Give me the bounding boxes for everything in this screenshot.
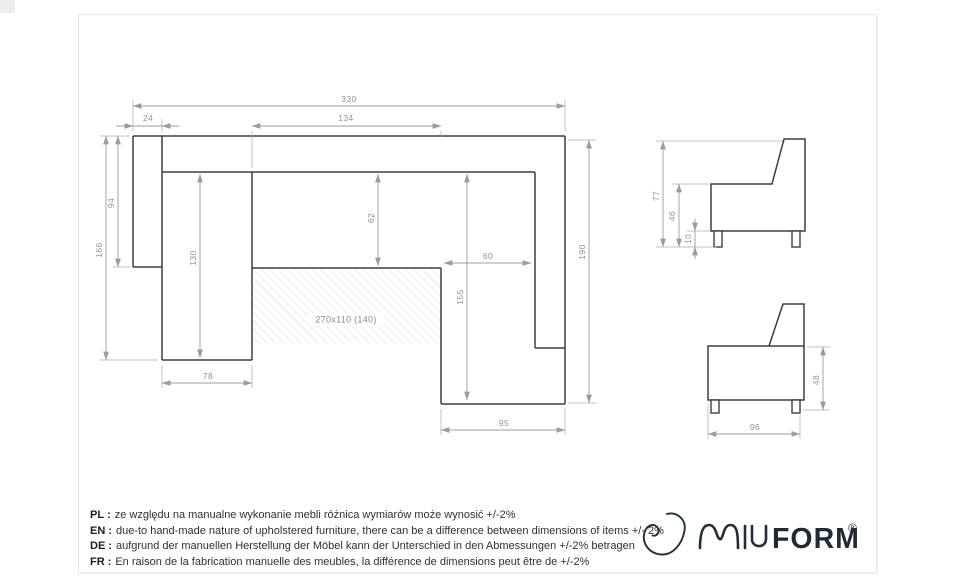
dim-seat-depth-label: 62 xyxy=(366,213,376,223)
dim-left-chaise-width: 78 xyxy=(162,365,252,388)
disclaimer-separator: : xyxy=(108,540,112,552)
side-corner-leg-left xyxy=(714,231,722,247)
logo-form-text: FORM xyxy=(772,523,860,555)
disclaimer-separator: : xyxy=(108,525,112,537)
disclaimer-line-pl: PL:ze względu na manualne wykonanie mebl… xyxy=(90,508,665,524)
dim-left-chaise-length: 130 xyxy=(188,174,200,358)
disclaimer-line-en: EN:due-to hand-made nature of upholstere… xyxy=(90,524,665,540)
disclaimer-block: PL:ze względu na manualne wykonanie mebl… xyxy=(90,508,665,570)
dim-right-chaise-width-label: 95 xyxy=(499,418,509,428)
dim-body-height: 48 xyxy=(803,347,830,410)
dim-total-height-label: 77 xyxy=(651,191,661,201)
dim-body-height-label: 48 xyxy=(811,375,821,385)
side-front-body xyxy=(708,346,804,400)
technical-drawing-page: 270x110 (140) xyxy=(0,0,960,587)
sofa-plan-view: 270x110 (140) xyxy=(94,94,596,435)
dim-left-armrest-depth-label: 94 xyxy=(106,198,116,208)
disclaimer-lang-en: EN xyxy=(90,525,105,537)
dim-center-section-width-label: 134 xyxy=(338,113,353,123)
dim-center-section-width: 134 xyxy=(252,113,441,168)
dim-leg-height: 10 xyxy=(683,219,710,259)
dim-leg-height-label: 10 xyxy=(683,234,693,244)
sleeping-area-hatch xyxy=(253,269,440,344)
dim-left-side-depth-label: 166 xyxy=(94,242,104,257)
side-front-backrest xyxy=(769,304,804,346)
side-front-leg-left xyxy=(711,400,719,413)
sofa-side-view-front: 48 96 xyxy=(708,304,830,439)
logo-registered-mark: ® xyxy=(848,521,857,535)
dim-depth: 96 xyxy=(708,404,800,439)
miuform-logo: FORM ® xyxy=(644,514,860,555)
disclaimer-text-en: due-to hand-made nature of upholstered f… xyxy=(116,525,664,537)
dim-right-chaise-width: 95 xyxy=(441,409,565,435)
disclaimer-lang-fr: FR xyxy=(90,556,105,568)
dim-left-chaise-length-label: 130 xyxy=(188,250,198,265)
disclaimer-line-de: DE:aufgrund der manuellen Herstellung de… xyxy=(90,539,665,555)
side-corner-outline xyxy=(711,139,805,231)
dim-depth-label: 96 xyxy=(750,422,760,432)
dim-right-chaise-length-label: 155 xyxy=(455,289,465,304)
technical-drawing-svg: 270x110 (140) xyxy=(0,0,960,587)
disclaimer-lang-de: DE xyxy=(90,540,105,552)
logo-miu-glyphs xyxy=(700,525,766,548)
dim-overall-width-label: 330 xyxy=(341,94,356,104)
disclaimer-separator: : xyxy=(107,509,111,521)
disclaimer-lang-pl: PL xyxy=(90,509,104,521)
dim-left-armrest-width-label: 24 xyxy=(143,113,153,123)
disclaimer-text-fr: En raison de la fabrication manuelle des… xyxy=(115,556,589,568)
dim-seat-height-label: 46 xyxy=(667,211,677,221)
dim-right-chaise-length: 155 xyxy=(455,174,467,400)
side-front-leg-right xyxy=(792,400,800,413)
dim-right-seat-width-label: 60 xyxy=(483,251,493,261)
disclaimer-text-pl: ze względu na manualne wykonanie mebli r… xyxy=(115,509,516,521)
sofa-side-view-corner: 77 46 10 xyxy=(651,139,805,259)
dim-left-armrest-depth: 94 xyxy=(100,136,130,267)
dim-left-chaise-width-label: 78 xyxy=(203,371,213,381)
side-corner-leg-right xyxy=(792,231,800,247)
dim-right-side-depth: 190 xyxy=(568,140,596,403)
dim-left-armrest-width: 24 xyxy=(116,113,179,133)
dim-right-side-depth-label: 190 xyxy=(577,244,587,259)
sleeping-area-label: 270x110 (140) xyxy=(315,315,376,325)
dim-seat-depth: 62 xyxy=(366,174,378,266)
disclaimer-text-de: aufgrund der manuellen Herstellung der M… xyxy=(116,540,635,552)
dim-left-side-depth: 166 xyxy=(94,136,158,360)
disclaimer-separator: : xyxy=(108,556,112,568)
disclaimer-line-fr: FR:En raison de la fabrication manuelle … xyxy=(90,555,665,571)
dim-right-seat-width: 60 xyxy=(444,251,531,263)
